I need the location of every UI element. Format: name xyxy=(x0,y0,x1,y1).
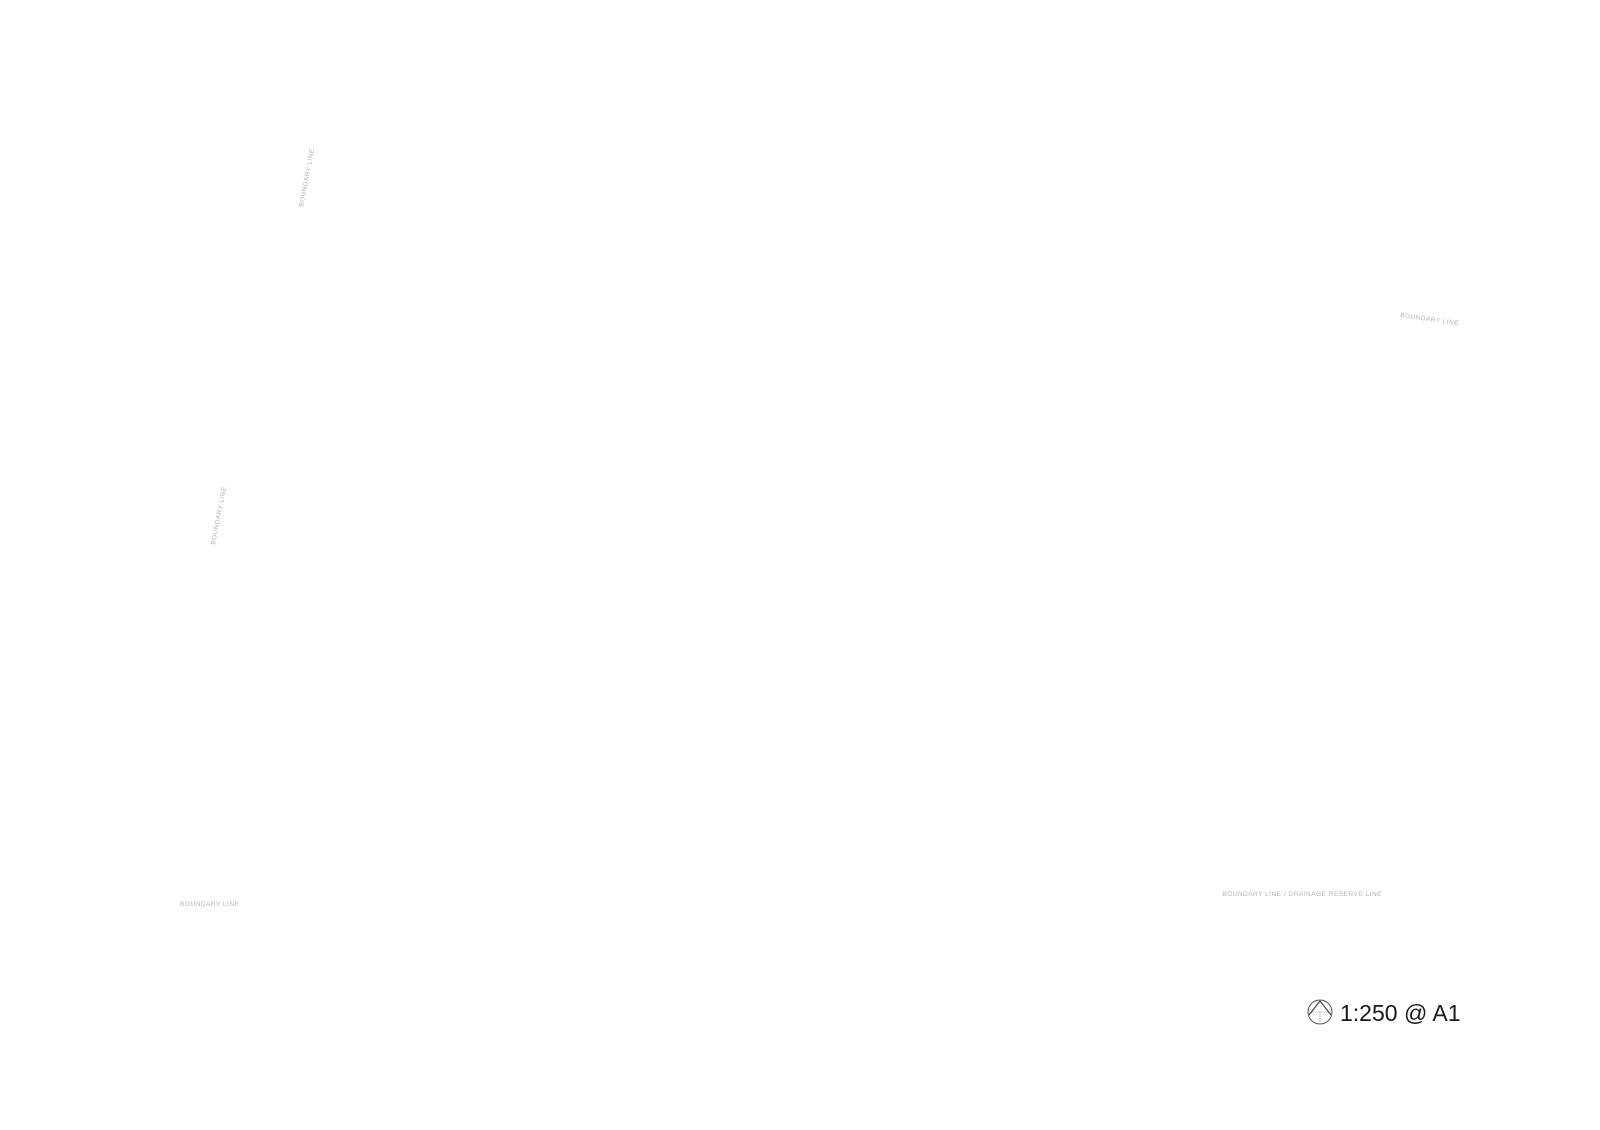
boundary-label-bottom-right: BOUNDARY LINE / DRAINAGE RESERVE LINE xyxy=(1222,891,1382,898)
scale-label: 1:250 @ A1 xyxy=(1340,1000,1461,1026)
site-plan-drawing: BOUNDARY LINE BOUNDARY LINE / DRAINAGE R… xyxy=(0,0,1600,1130)
site-plan: BOUNDARY LINE BOUNDARY LINE / DRAINAGE R… xyxy=(0,0,1600,1130)
north-arrow-icon xyxy=(1308,1000,1332,1024)
boundary-label-left: BOUNDARY LINE xyxy=(210,486,228,546)
boundary-label-top-left: BOUNDARY LINE xyxy=(298,148,316,208)
scale-note: 1:250 @ A1 xyxy=(1308,1000,1461,1026)
annotations: BOUNDARY LINE BOUNDARY LINE / DRAINAGE R… xyxy=(180,148,1461,1026)
boundary-label-top-right: BOUNDARY LINE xyxy=(1400,312,1460,327)
boundary-label-bottom-left: BOUNDARY LINE xyxy=(180,901,240,908)
